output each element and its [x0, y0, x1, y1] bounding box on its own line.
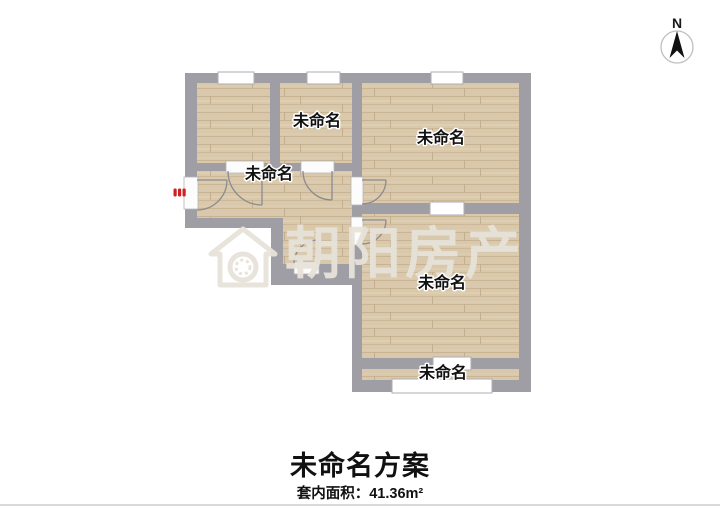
wall-topleft-divider	[270, 83, 280, 171]
entrance-door-opening	[184, 177, 198, 209]
footer: 未命名方案 套内面积：41.36m²	[0, 452, 720, 503]
window	[431, 72, 463, 84]
floor-room-top-left	[197, 83, 270, 163]
compass-needle-icon	[670, 31, 685, 58]
window	[218, 72, 254, 84]
footer-divider	[0, 504, 720, 506]
compass-north-label: N	[672, 15, 682, 31]
door-opening	[351, 177, 363, 205]
watermark-brand: 朝阳房产	[285, 224, 525, 286]
window	[430, 202, 464, 215]
wall-hallway-bottom	[185, 218, 283, 228]
room-label: 未命名	[292, 111, 341, 130]
entrance-door-marker-icon	[174, 189, 186, 197]
room-label: 未命名	[418, 363, 467, 382]
compass: N	[661, 15, 693, 63]
plan-area-text: 套内面积：41.36m²	[0, 482, 720, 503]
room-label: 未命名	[244, 164, 293, 183]
floor-plan-page: 朝阳房产 未命名 未命名 未命名 未命名 未命名 N 未命名方案 套内面积：41…	[0, 0, 720, 510]
door-opening	[301, 161, 334, 173]
watermark: 朝阳房产	[211, 224, 525, 286]
house-logo-icon	[211, 229, 275, 285]
floor-plan-canvas: 朝阳房产 未命名 未命名 未命名 未命名 未命名 N	[0, 0, 720, 510]
room-label: 未命名	[416, 128, 465, 147]
room-label: 未命名	[417, 273, 466, 292]
window	[307, 72, 340, 84]
plan-title: 未命名方案	[0, 452, 720, 480]
